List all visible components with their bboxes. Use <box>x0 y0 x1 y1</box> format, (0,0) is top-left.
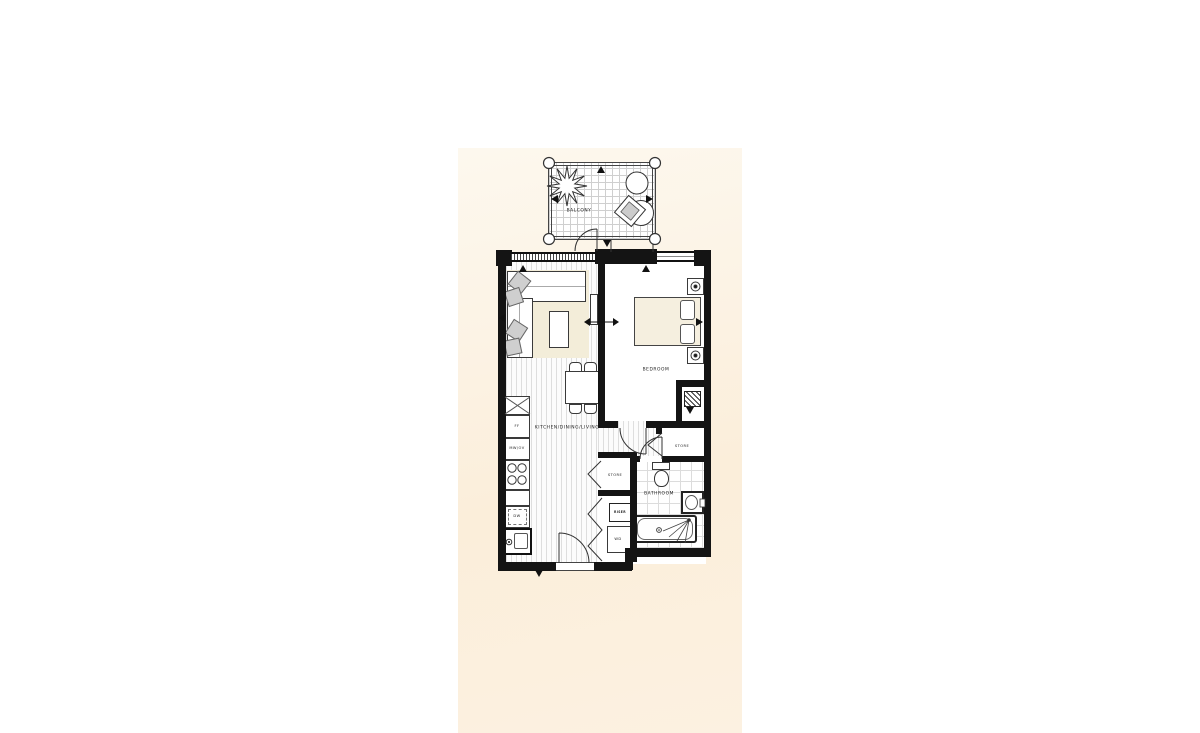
dimension-arrows <box>499 166 703 577</box>
plan-linework <box>0 0 1200 733</box>
sink-tap <box>506 539 512 545</box>
store-lower-door <box>588 461 601 488</box>
bathroom-door-arc <box>640 437 662 459</box>
entry-door-arc <box>559 533 589 563</box>
balcony-table <box>626 172 648 194</box>
bath-drain <box>657 528 662 533</box>
shower-spray <box>663 518 691 543</box>
unit-cross <box>505 397 530 414</box>
cupboard-bifold-doors <box>588 498 602 561</box>
floor-plan: BALCONY BEDROOM KITCHEN/DINING/LIVING BA… <box>0 0 1200 733</box>
basin-tap <box>700 499 705 507</box>
store-upper-door <box>648 433 662 456</box>
hob-burners <box>508 464 526 484</box>
